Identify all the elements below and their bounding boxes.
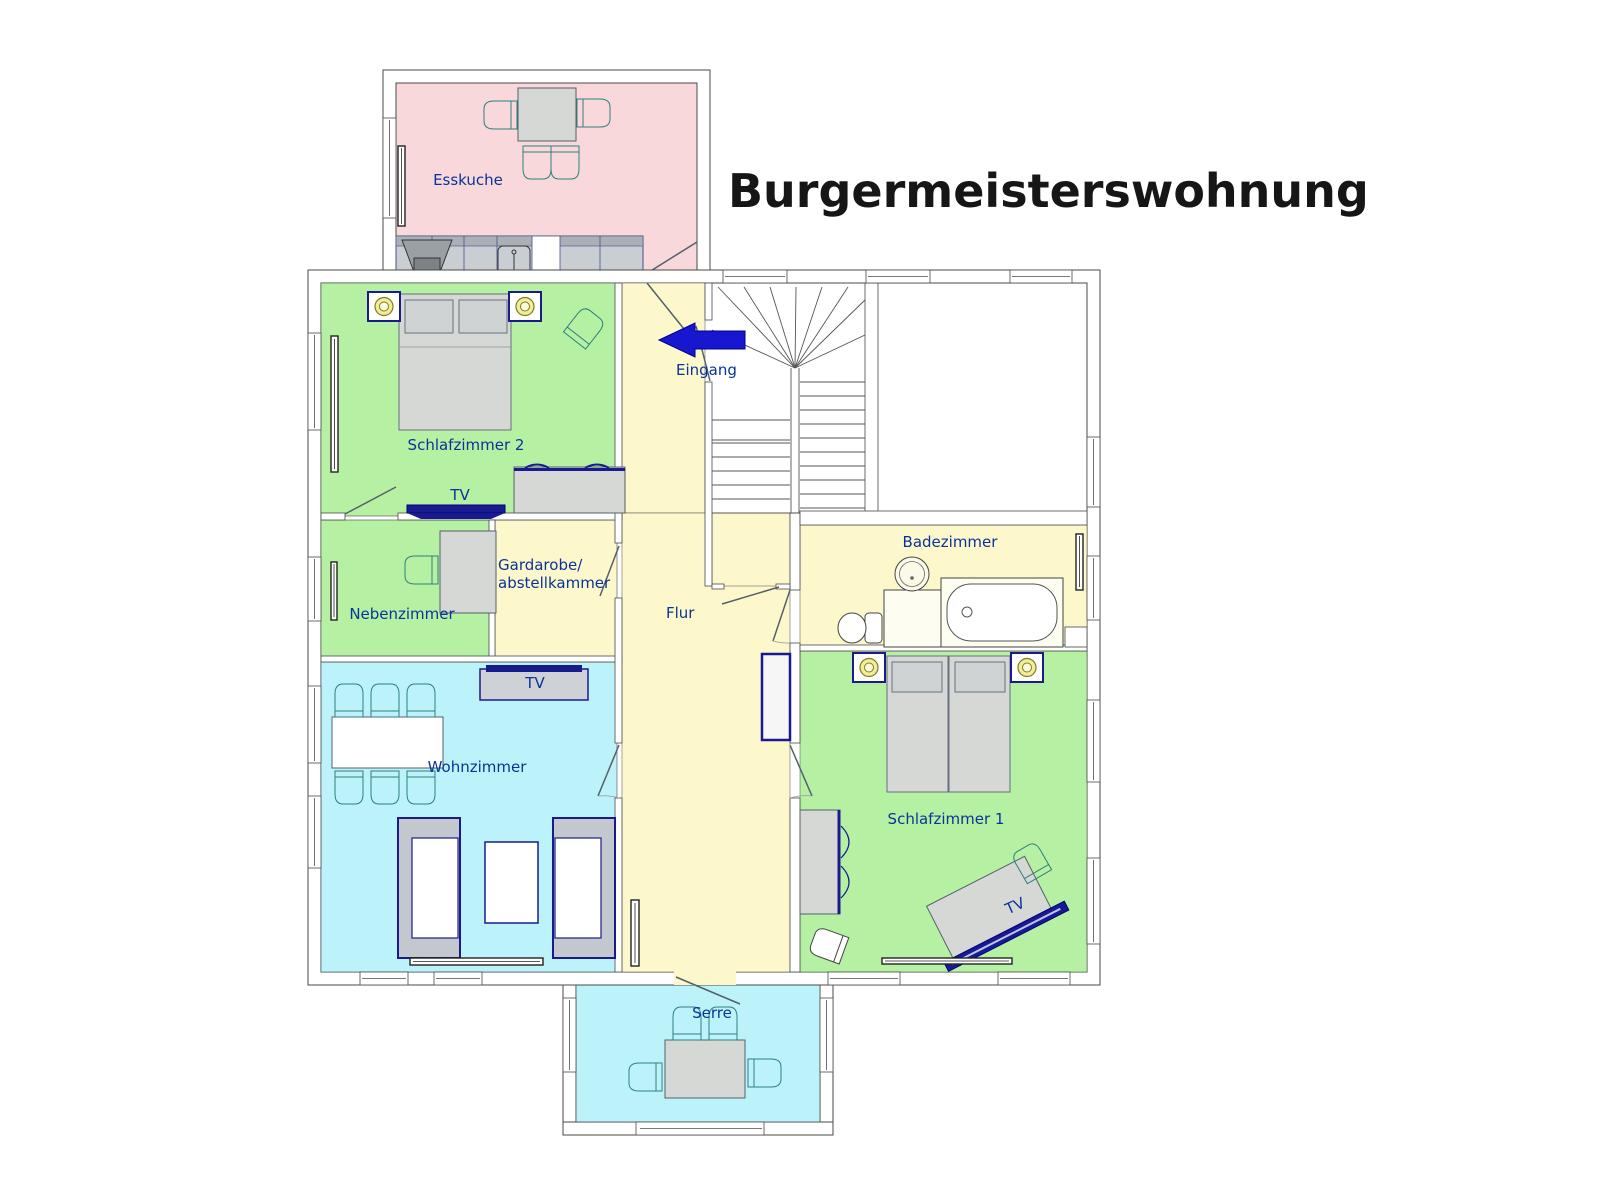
radiator [1076, 534, 1083, 590]
dresser [514, 465, 625, 514]
dining-table-group [332, 684, 443, 804]
tv-label: TV [410, 486, 510, 504]
hall-cabinet [762, 654, 790, 740]
vanity [884, 590, 941, 647]
floorplan-page: Burgermeisterswohnung Esskuche Schlafzim… [0, 0, 1600, 1200]
desk [440, 531, 496, 613]
room-label-serre: Serre [662, 1004, 762, 1022]
chair [371, 684, 399, 717]
shelf [1065, 627, 1087, 647]
table [665, 1040, 745, 1098]
sofa [553, 818, 615, 958]
serre-doorway [674, 971, 736, 985]
radiator [331, 336, 338, 472]
radiator [882, 958, 1012, 964]
room-label-wohnzimmer: Wohnzimmer [377, 758, 577, 776]
radiator [410, 958, 543, 965]
chair [335, 684, 363, 717]
room-label-schlafzimmer2: Schlafzimmer 2 [366, 436, 566, 454]
page-title: Burgermeisterswohnung [728, 164, 1369, 218]
room-label-badezimmer: Badezimmer [850, 533, 1050, 551]
nightstand-lamp-icon [509, 292, 541, 321]
room-label-nebenzimmer: Nebenzimmer [302, 605, 502, 623]
nightstand-lamp-icon [1011, 653, 1043, 682]
washbasin-icon [895, 557, 929, 591]
tv-icon [486, 665, 582, 672]
chair [335, 771, 363, 804]
chair [748, 1059, 781, 1087]
room-label-flur: Flur [666, 604, 694, 622]
flur-vestibule-floor [712, 513, 790, 586]
room-label-gardarobe: Gardarobe/ abstellkammer [498, 556, 610, 592]
radiator [631, 900, 639, 966]
double-bed [399, 294, 511, 430]
coffee-table [485, 842, 538, 923]
serre-annex [563, 975, 833, 1135]
room-label-schlafzimmer1: Schlafzimmer 1 [846, 810, 1046, 828]
entrance-label: Eingang [676, 361, 737, 379]
chair [407, 684, 435, 717]
twin-beds [887, 656, 1010, 792]
toilet-icon [838, 613, 882, 643]
sofa [398, 818, 460, 958]
bathtub-icon [941, 578, 1063, 647]
nightstand-lamp-icon [368, 292, 400, 321]
tv-label: TV [485, 674, 585, 692]
room-label-esskuche: Esskuche [393, 171, 543, 189]
flur-floor [622, 283, 705, 513]
nightstand-lamp-icon [853, 653, 885, 682]
chair [629, 1063, 662, 1091]
tv-icon [407, 505, 505, 519]
